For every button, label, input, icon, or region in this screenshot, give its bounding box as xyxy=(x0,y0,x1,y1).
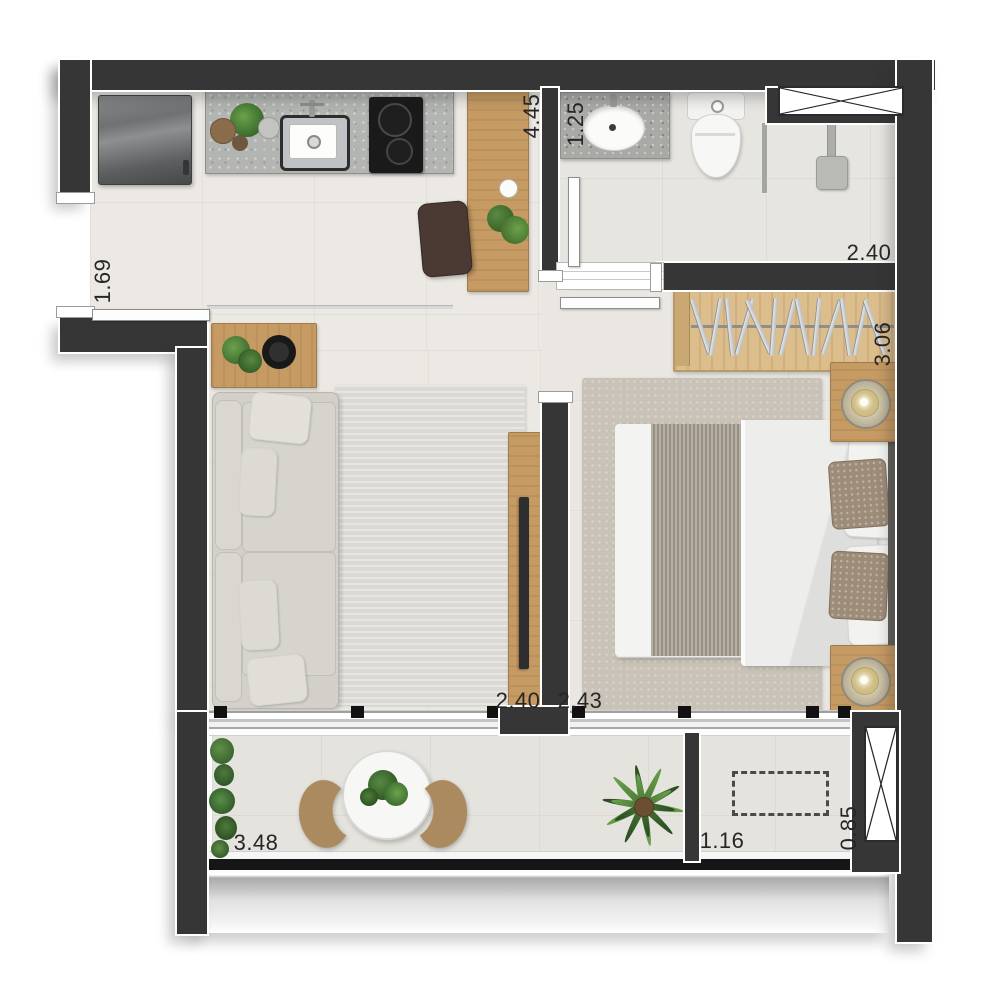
sink-drain-icon xyxy=(307,135,321,149)
toilet-flush-button-icon xyxy=(711,100,724,113)
balcony-glass-panel xyxy=(197,872,889,933)
balcony-table-plant-leaf xyxy=(384,782,408,806)
cooktop-burner-large-icon xyxy=(378,103,412,137)
wall-bath-bottom xyxy=(658,263,905,290)
bath-wall-end-cap xyxy=(650,263,662,292)
slider-clip-icon xyxy=(678,706,691,718)
bedroom-door-leaf xyxy=(560,297,660,309)
window-shaft-top-icon xyxy=(778,86,904,116)
climbing-plant-2 xyxy=(214,764,234,786)
bed-pillow-brown-1 xyxy=(828,458,891,530)
entry-opening-cap-bottom xyxy=(56,306,95,318)
sofa-pillow-top xyxy=(248,391,313,445)
refrigerator xyxy=(98,95,192,185)
dimension-balcony-length: 3.48 xyxy=(229,832,283,854)
shower-head-icon xyxy=(816,156,848,190)
wall-right xyxy=(897,60,932,942)
dimension-small-balcony-depth: 0.85 xyxy=(838,801,860,855)
kitchen-boundary-line xyxy=(207,305,453,309)
palm-pot-icon xyxy=(634,797,654,817)
sofa-pillow-mid-1 xyxy=(238,447,278,517)
dimension-entry-width: 1.69 xyxy=(92,254,114,308)
bed-runner-blanket xyxy=(651,424,741,656)
tv xyxy=(519,497,529,669)
closet-rail-icon xyxy=(691,325,894,328)
slider-clip-icon xyxy=(838,706,851,718)
sink-faucet-bar-icon xyxy=(300,103,324,106)
wall-bedroom-divider xyxy=(542,397,568,713)
bedroom-divider-cap xyxy=(538,391,573,403)
refrigerator-handle-icon xyxy=(183,160,189,175)
living-rug xyxy=(335,385,525,705)
dimension-living-width: 2.40 xyxy=(491,690,545,712)
desk-plant-leaf xyxy=(501,216,529,244)
dimension-kitchen-depth: 4.45 xyxy=(521,89,543,143)
dimension-bedroom-depth: 3.06 xyxy=(872,317,894,371)
bed-sheet-fold xyxy=(615,424,653,656)
table-lamp-bottom-bulb-icon xyxy=(860,676,868,684)
balcony-table-plant-leaf-2 xyxy=(360,788,378,806)
toilet-seat-line xyxy=(695,133,735,136)
bed-pillow-brown-2 xyxy=(828,551,889,622)
coffee-table-bowl-inner xyxy=(269,342,289,362)
window-shaft-right-icon xyxy=(864,726,898,842)
wall-left-upper xyxy=(60,60,90,200)
slider-clip-icon xyxy=(806,706,819,718)
cooktop-burner-small-icon xyxy=(386,138,413,165)
shower-glass-partition xyxy=(762,123,767,193)
coffee-table-plant-leaf xyxy=(238,349,262,373)
balcony-rail xyxy=(207,859,889,870)
slider-clip-icon xyxy=(214,706,227,718)
bath-divider-cap xyxy=(538,270,563,282)
sofa-backrest-bottom xyxy=(215,552,242,702)
floor-plan: 4.45 1.25 2.40 1.69 3.06 2.40 2.43 3.48 … xyxy=(0,0,1000,994)
entry-opening-cap-top xyxy=(56,192,95,204)
climbing-plant-1 xyxy=(210,738,234,764)
bathroom-door-leaf xyxy=(568,177,580,267)
closet-side-panel xyxy=(675,290,690,366)
bathroom-sink-drain-icon xyxy=(609,124,616,131)
wall-balcony-left xyxy=(177,712,207,934)
desk-chair xyxy=(417,200,473,278)
table-lamp-top-bulb-icon xyxy=(860,398,868,406)
wall-left-lower xyxy=(177,348,207,714)
climbing-plant-3 xyxy=(209,788,235,814)
counter-jar xyxy=(258,117,280,139)
sofa-pillow-mid-2 xyxy=(238,579,280,651)
ac-equipment-outline xyxy=(732,771,829,816)
climbing-plant-5 xyxy=(211,840,229,858)
desk-cup xyxy=(499,179,518,198)
bathroom-faucet-icon xyxy=(610,94,617,107)
dimension-bath-length: 2.40 xyxy=(842,242,896,264)
sofa-pillow-bottom xyxy=(246,653,309,707)
dimension-bedroom-width: 2.43 xyxy=(553,690,607,712)
slider-clip-icon xyxy=(351,706,364,718)
wall-left-step xyxy=(60,318,207,352)
counter-dish xyxy=(232,135,248,151)
sofa-backrest-top xyxy=(215,400,242,550)
shower-pipe-icon xyxy=(827,123,836,159)
dimension-bath-width: 1.25 xyxy=(565,97,587,151)
dimension-small-balcony-length: 1.16 xyxy=(695,830,749,852)
entry-door-leaf xyxy=(92,309,210,321)
bedroom-door-floor xyxy=(542,276,570,397)
